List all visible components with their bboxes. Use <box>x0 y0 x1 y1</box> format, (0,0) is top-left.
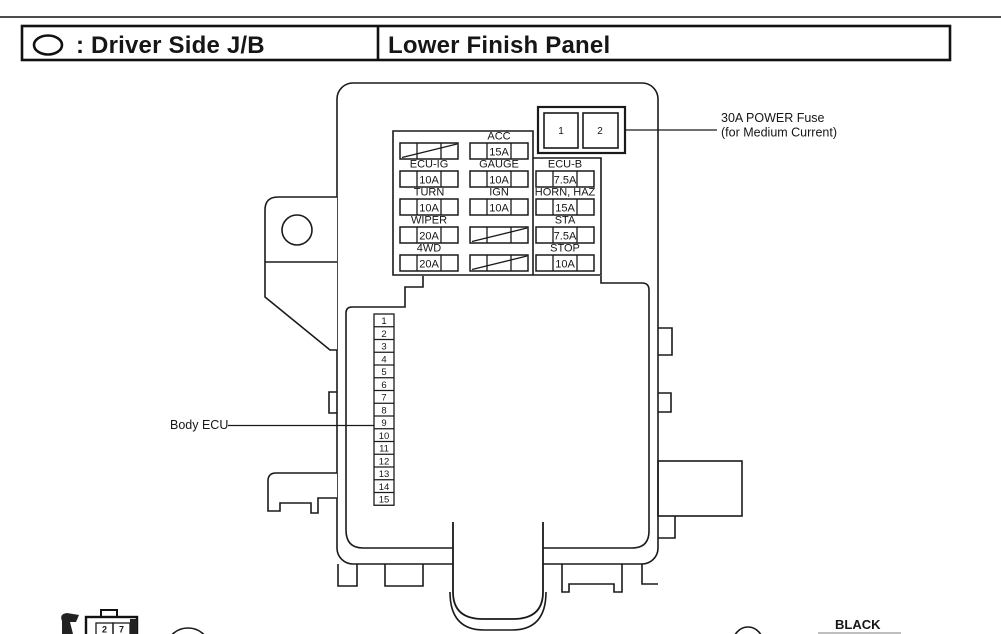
pin-number: 4 <box>381 354 386 365</box>
pin-number: 1 <box>381 316 386 327</box>
pin-number: 10 <box>379 431 390 442</box>
power-fuse-note-line1: 30A POWER Fuse <box>721 111 825 125</box>
fuse-slot: ECU-IG 10A <box>400 159 458 188</box>
fuse-label: STOP <box>550 243 580 255</box>
fuse-slot: ECU-B 7.5A <box>536 159 594 188</box>
partial-oval-symbol-left <box>168 628 208 634</box>
fuse-box-diagram: : Driver Side J/B Lower Finish Panel ACC <box>0 0 1001 634</box>
power-fuse-note-line2: (for Medium Current) <box>721 126 837 140</box>
right-edge-tab-lower <box>658 393 671 412</box>
fuse-amps: 10A <box>419 203 439 215</box>
fuse-label: TURN <box>414 187 445 199</box>
mini-connector-icon: 2 7 <box>61 610 137 634</box>
fuse-slot: ACC 15A <box>470 131 528 160</box>
right-connector-step <box>658 516 675 538</box>
fuse-amps: 10A <box>555 259 575 271</box>
header-left-label: : Driver Side J/B <box>76 32 265 59</box>
fuse-slot: TURN 10A <box>400 187 458 216</box>
fuse-label: ACC <box>487 131 510 143</box>
bracket-outline <box>265 197 337 350</box>
fuse-slot <box>400 143 458 159</box>
mini-connector-hatch <box>130 619 137 634</box>
junction-block-oval-icon <box>34 36 62 55</box>
header-right-label: Lower Finish Panel <box>388 32 610 59</box>
right-connector-body <box>658 461 742 516</box>
pin-number: 13 <box>379 469 390 480</box>
pin-number: 8 <box>381 405 386 416</box>
bottom-connector-body <box>453 522 543 619</box>
pin-number: 9 <box>381 418 386 429</box>
crossed-out-mark <box>472 228 527 242</box>
fuse-amps: 10A <box>419 175 439 187</box>
left-edge-tab <box>329 392 337 413</box>
upper-left-bracket <box>265 197 337 350</box>
mini-pin-number: 2 <box>102 625 107 634</box>
pin-number: 2 <box>381 329 386 340</box>
pin-number: 6 <box>381 380 386 391</box>
fuse-slot: GAUGE 10A <box>470 159 528 188</box>
power-fuse-outline <box>538 107 625 153</box>
fuse-amps: 10A <box>489 203 509 215</box>
pin-number: 11 <box>379 444 389 455</box>
fuse-slot: IGN 10A <box>470 187 528 216</box>
fuse-amps: 20A <box>419 231 439 243</box>
fuse-slot: STA 7.5A <box>536 215 594 244</box>
header-legend: : Driver Side J/B Lower Finish Panel <box>22 26 950 60</box>
pin-number: 5 <box>381 367 386 378</box>
body-ecu-label: Body ECU <box>170 418 228 432</box>
fuse-amps: 20A <box>419 259 439 271</box>
power-fuse-slot-1-number: 1 <box>558 126 564 137</box>
bottom-foot-3 <box>562 564 622 592</box>
right-edge-tab-upper <box>658 328 672 355</box>
fuse-label: HORN, HAZ <box>535 187 596 199</box>
fuse-slot: STOP 10A <box>536 243 594 272</box>
black-connector-label: BLACK <box>835 617 881 632</box>
pin-number: 7 <box>381 393 386 404</box>
inner-panel-outline <box>346 276 649 548</box>
fuse-label: STA <box>555 215 576 227</box>
right-connector <box>658 461 742 538</box>
fuse-slot <box>470 227 528 243</box>
fuse-slot: 4WD 20A <box>400 243 458 272</box>
page: : Driver Side J/B Lower Finish Panel ACC <box>0 0 1001 634</box>
fuse-label: ECU-B <box>548 159 582 171</box>
pin-number: 3 <box>381 342 386 353</box>
fuse-label: WIPER <box>411 215 447 227</box>
power-fuse-block: 1 2 30A POWER Fuse (for Medium Current) <box>538 107 837 153</box>
bottom-foot-4 <box>642 564 658 584</box>
pin-number: 15 <box>379 495 390 506</box>
fuse-label: 4WD <box>417 243 442 255</box>
power-fuse-slot-2-number: 2 <box>597 126 603 137</box>
fuse-amps: 7.5A <box>554 231 577 243</box>
fuse-label: GAUGE <box>479 159 519 171</box>
crossed-out-mark <box>472 256 527 270</box>
fuse-label: IGN <box>489 187 509 199</box>
fuse-label: ECU-IG <box>410 159 449 171</box>
pin-numbers: 1 2 3 4 5 6 7 8 9 10 11 12 13 14 15 <box>379 316 390 506</box>
bottom-connector <box>450 522 546 630</box>
lower-left-bracket <box>268 473 337 513</box>
fuse-amps: 10A <box>489 175 509 187</box>
fuse-slot: HORN, HAZ 15A <box>535 187 596 216</box>
mini-pin-number: 7 <box>119 625 124 634</box>
fuse-amps: 15A <box>555 203 575 215</box>
fuse-amps: 15A <box>489 147 509 159</box>
bottom-foot-1 <box>338 564 357 586</box>
partial-circle-symbol-right <box>733 627 763 634</box>
pin-number: 14 <box>379 482 390 493</box>
mini-connector-clip <box>61 613 79 634</box>
fuse-slot: WIPER 20A <box>400 215 458 244</box>
fuse-amps: 7.5A <box>554 175 577 187</box>
pin-number: 12 <box>379 456 390 467</box>
fuse-slot <box>470 255 528 271</box>
bottom-foot-2 <box>385 564 423 586</box>
crossed-out-mark <box>402 144 457 158</box>
